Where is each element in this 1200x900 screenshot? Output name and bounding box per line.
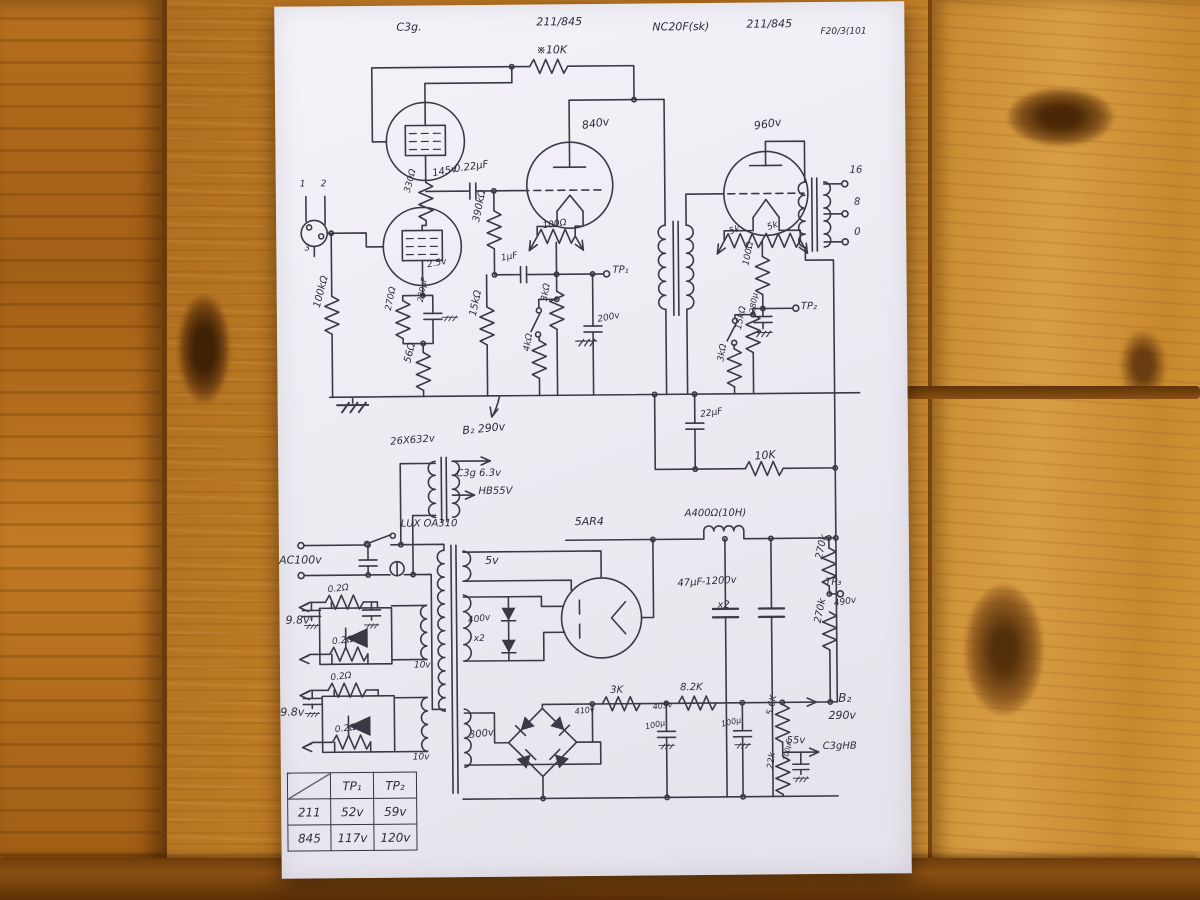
schematic-label: 280μ — [749, 292, 760, 313]
schematic-label: 5v — [485, 555, 499, 566]
schematic-label: AC100v — [279, 554, 322, 565]
table-row: 845 117v 120v — [288, 824, 417, 851]
schematic-label: 15kΩ — [469, 289, 484, 317]
schematic-label: 15kΩ — [735, 306, 749, 331]
schematic-label: 2.5v — [426, 258, 447, 270]
wood-knot — [178, 295, 230, 403]
schematic-label: 960v — [753, 117, 782, 132]
schematic-label: 10K — [754, 449, 776, 462]
schematic-label: 330Ω — [404, 168, 419, 194]
schematic-label: 270Ω — [385, 286, 399, 311]
schematic-label: 270k — [814, 598, 829, 624]
schematic-label: 410v — [574, 706, 595, 716]
schematic-label: 300v — [469, 728, 495, 741]
table-corner-cell — [287, 773, 330, 799]
schematic-label: ※10K — [537, 44, 568, 55]
schematic-label: 22k — [767, 752, 778, 770]
schematic-label: TP₃ — [825, 578, 841, 588]
schematic-label: NC20F(sk) — [652, 21, 709, 32]
schematic-label: 100Ω — [742, 241, 756, 266]
schematic-label: C3g 6.3v — [456, 469, 501, 479]
schematic-label: 100Ω — [542, 219, 567, 231]
schematic-label: 0.22μF — [454, 160, 489, 175]
schematic-label: 270k — [815, 534, 830, 560]
schematic-label: 840v — [581, 116, 610, 131]
row-name: 211 — [288, 799, 331, 825]
tp1-value: 52v — [331, 798, 374, 824]
schematic-label: 9.8v — [280, 707, 304, 718]
tp2-value: 120v — [374, 824, 417, 850]
schematic-label: 1μF — [500, 252, 518, 264]
schematic-label: 0.2Ω — [330, 672, 352, 683]
wood-plank-left — [0, 0, 167, 900]
wood-knot — [1008, 88, 1113, 146]
schematic-label: LUX OA310 — [401, 519, 458, 529]
table-header-tp1: TP₁ — [330, 772, 373, 798]
photo-scene: { "scene": { "description": "hand-drawn … — [0, 0, 1200, 900]
schematic-label: 0.2Ω — [334, 724, 356, 735]
schematic-label: 56Ω — [403, 342, 418, 364]
schematic-label: TP₂ — [801, 302, 817, 312]
schematic-label: 3K — [610, 686, 623, 696]
schematic-label: F20/3(101 — [820, 28, 866, 37]
schematic-label: 8.2K — [680, 683, 703, 693]
schematic-label: 47μF-1200v — [677, 576, 737, 590]
plank-seam — [906, 386, 1200, 399]
schematic-label: x2 — [717, 601, 729, 611]
schematic-label: 1 — [300, 180, 306, 189]
schematic-label: 5k — [766, 221, 779, 233]
schematic-label: A400Ω(10H) — [685, 509, 747, 520]
row-name: 845 — [288, 825, 331, 851]
schematic-label: 10v — [414, 661, 431, 670]
schematic-label: 200v — [597, 312, 621, 325]
schematic-label: 0.2Ω — [332, 636, 354, 647]
schematic-label: 26X632v — [390, 434, 435, 447]
tp1-value: 117v — [331, 824, 374, 850]
schematic-label: 4kΩ — [523, 333, 535, 352]
schematic-label: 3 — [304, 244, 310, 253]
schematic-label: 10v — [413, 753, 430, 762]
schematic-label: x2 — [474, 635, 485, 644]
schematic-label: 290v — [828, 710, 856, 721]
schematic-label: 3kΩ — [541, 283, 553, 302]
schematic-label: 9.8v — [286, 614, 310, 625]
test-point-table: TP₁ TP₂ 211 52v 59v 845 117v 120v — [287, 772, 418, 852]
schematic-label: 390kΩ — [472, 189, 488, 223]
schematic-label: 211/845 — [746, 18, 792, 29]
schematic-label: 100μ — [720, 716, 742, 728]
schematic-label: 100μ — [644, 719, 666, 731]
schematic-label: 3kΩ — [717, 343, 729, 362]
schematic-label: 0 — [854, 228, 860, 238]
schematic-label: 2 — [321, 180, 327, 189]
paper-sheet: C3g.211/845NC20F(sk)211/845F20/3(101※10K… — [274, 1, 912, 878]
schematic-label: 405v — [652, 701, 673, 711]
schematic-label: 5.6K — [766, 695, 779, 717]
schematic-label: TP₁ — [612, 266, 628, 276]
schematic-label: 5k — [728, 225, 741, 237]
schematic-label: 220μF — [417, 277, 429, 303]
schematic-label: 22μF — [700, 408, 723, 420]
schematic-label: 100μF — [783, 739, 794, 762]
schematic-label: 0.2Ω — [327, 584, 349, 595]
schematic-label: 8 — [854, 198, 860, 208]
schematic-label: HB55V — [478, 487, 512, 497]
schematic-label: 211/845 — [536, 16, 582, 27]
schematic-label: 5AR4 — [575, 516, 604, 527]
table-row: 211 52v 59v — [288, 798, 417, 825]
tp2-value: 59v — [374, 798, 417, 824]
schematic-label: B₂ 290v — [462, 421, 506, 436]
schematic-label: B₂ — [838, 692, 851, 704]
schematic-label: C3g. — [396, 21, 421, 32]
schematic-label: 100kΩ — [313, 275, 331, 309]
schematic-label: C3gHB — [823, 742, 857, 752]
table-header-tp2: TP₂ — [373, 772, 416, 798]
label-layer: C3g.211/845NC20F(sk)211/845F20/3(101※10K… — [274, 1, 912, 878]
schematic-label: 490v — [833, 597, 857, 609]
schematic-label: 16 — [850, 166, 863, 176]
wood-knot — [965, 585, 1043, 715]
schematic-label: 400v — [468, 614, 492, 626]
